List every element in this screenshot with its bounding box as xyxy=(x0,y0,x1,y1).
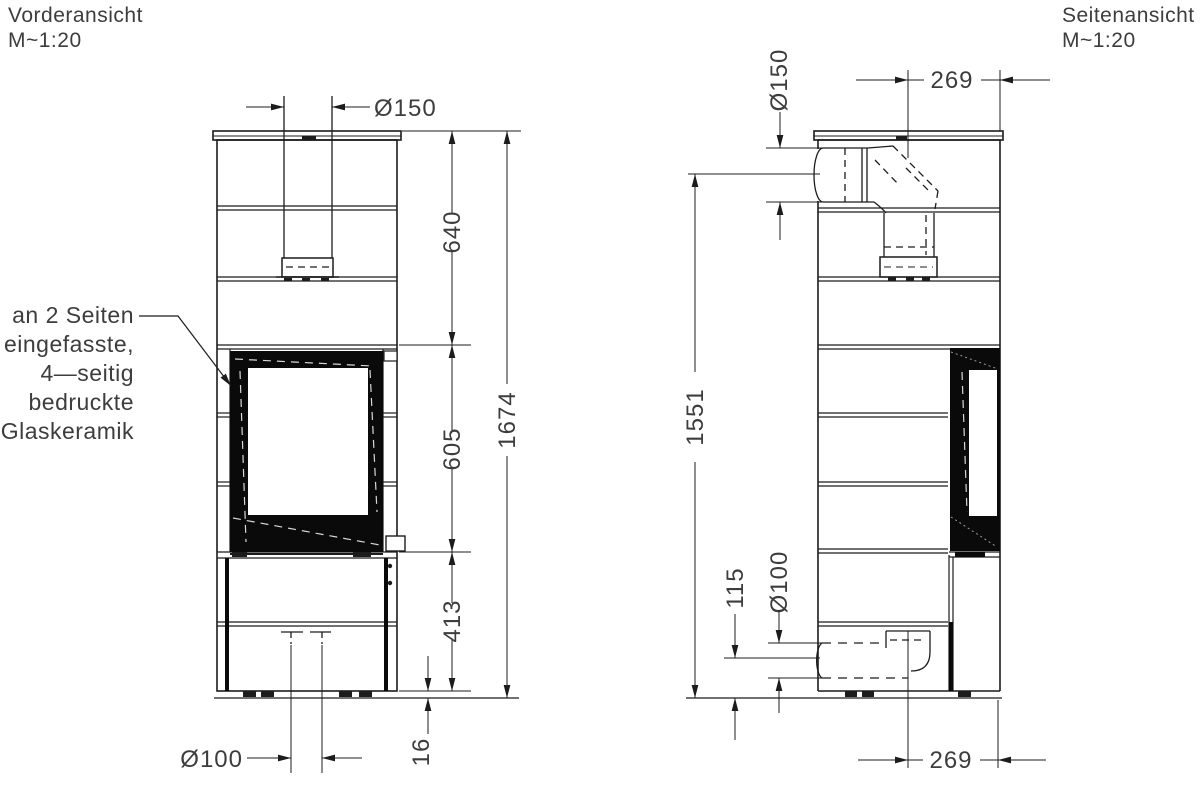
front-flue-pipe xyxy=(276,96,339,281)
side-view-scale: M~1:20 xyxy=(1062,29,1136,52)
stove-dimension-drawing: Vorderansicht M~1:20 Seitenansicht M~1:2… xyxy=(0,0,1200,786)
corner-post-left xyxy=(225,558,229,691)
side-view-title: Seitenansicht xyxy=(1062,4,1195,27)
air-intake-hidden-connection xyxy=(281,632,331,644)
dim-side-flue-height: 1551 xyxy=(682,388,709,445)
annotation-line-5: Glaskeramik xyxy=(1,418,134,444)
frame-mount-block xyxy=(384,351,397,361)
dim-side-intake-offset: 269 xyxy=(929,747,972,774)
annotation-line-1: an 2 Seiten xyxy=(12,302,134,328)
dim-front-intake-diameter: Ø100 xyxy=(180,746,243,773)
annotation-line-4: bedruckte xyxy=(28,389,134,415)
dim-front-lower-section: 413 xyxy=(439,599,466,642)
annotation-line-2: eingefasste, xyxy=(4,331,134,357)
glass-pane xyxy=(248,368,368,515)
front-view-scale: M~1:20 xyxy=(8,29,82,52)
side-air-duct xyxy=(817,631,930,678)
screw-dot xyxy=(388,581,392,585)
front-view xyxy=(213,96,519,698)
dim-front-flue-diameter: Ø150 xyxy=(374,95,437,122)
side-glass-pane xyxy=(969,370,997,516)
annotation-line-3: 4—seitig xyxy=(41,360,134,386)
dim-side-flue-offset: 269 xyxy=(930,67,973,94)
dim-side-flue-diameter: Ø150 xyxy=(766,49,793,112)
side-glass-strip xyxy=(950,348,1000,557)
dim-front-feet-height: 16 xyxy=(408,738,435,767)
dim-front-total-height: 1674 xyxy=(494,391,521,448)
side-view xyxy=(686,131,1003,698)
front-view-title: Vorderansicht xyxy=(8,4,143,27)
front-lower-section xyxy=(225,558,392,691)
door-handle xyxy=(386,536,405,551)
front-top-slab xyxy=(213,131,401,140)
dim-side-intake-height: 115 xyxy=(722,567,749,608)
glass-annotation: an 2 Seiten eingefasste, 4—seitig bedruc… xyxy=(1,302,231,444)
corner-post-right xyxy=(384,558,388,691)
front-feet xyxy=(243,691,372,697)
dim-front-upper-section: 640 xyxy=(439,210,466,253)
front-fire-door xyxy=(230,351,405,557)
dim-side-intake-diameter: Ø100 xyxy=(766,551,793,614)
dim-front-window-height: 605 xyxy=(439,427,466,470)
side-flue-elbow xyxy=(814,146,938,281)
flue-outlet-arc xyxy=(814,148,823,202)
technical-drawing-sheet: Vorderansicht M~1:20 Seitenansicht M~1:2… xyxy=(0,0,1200,786)
screw-dot xyxy=(388,564,392,568)
